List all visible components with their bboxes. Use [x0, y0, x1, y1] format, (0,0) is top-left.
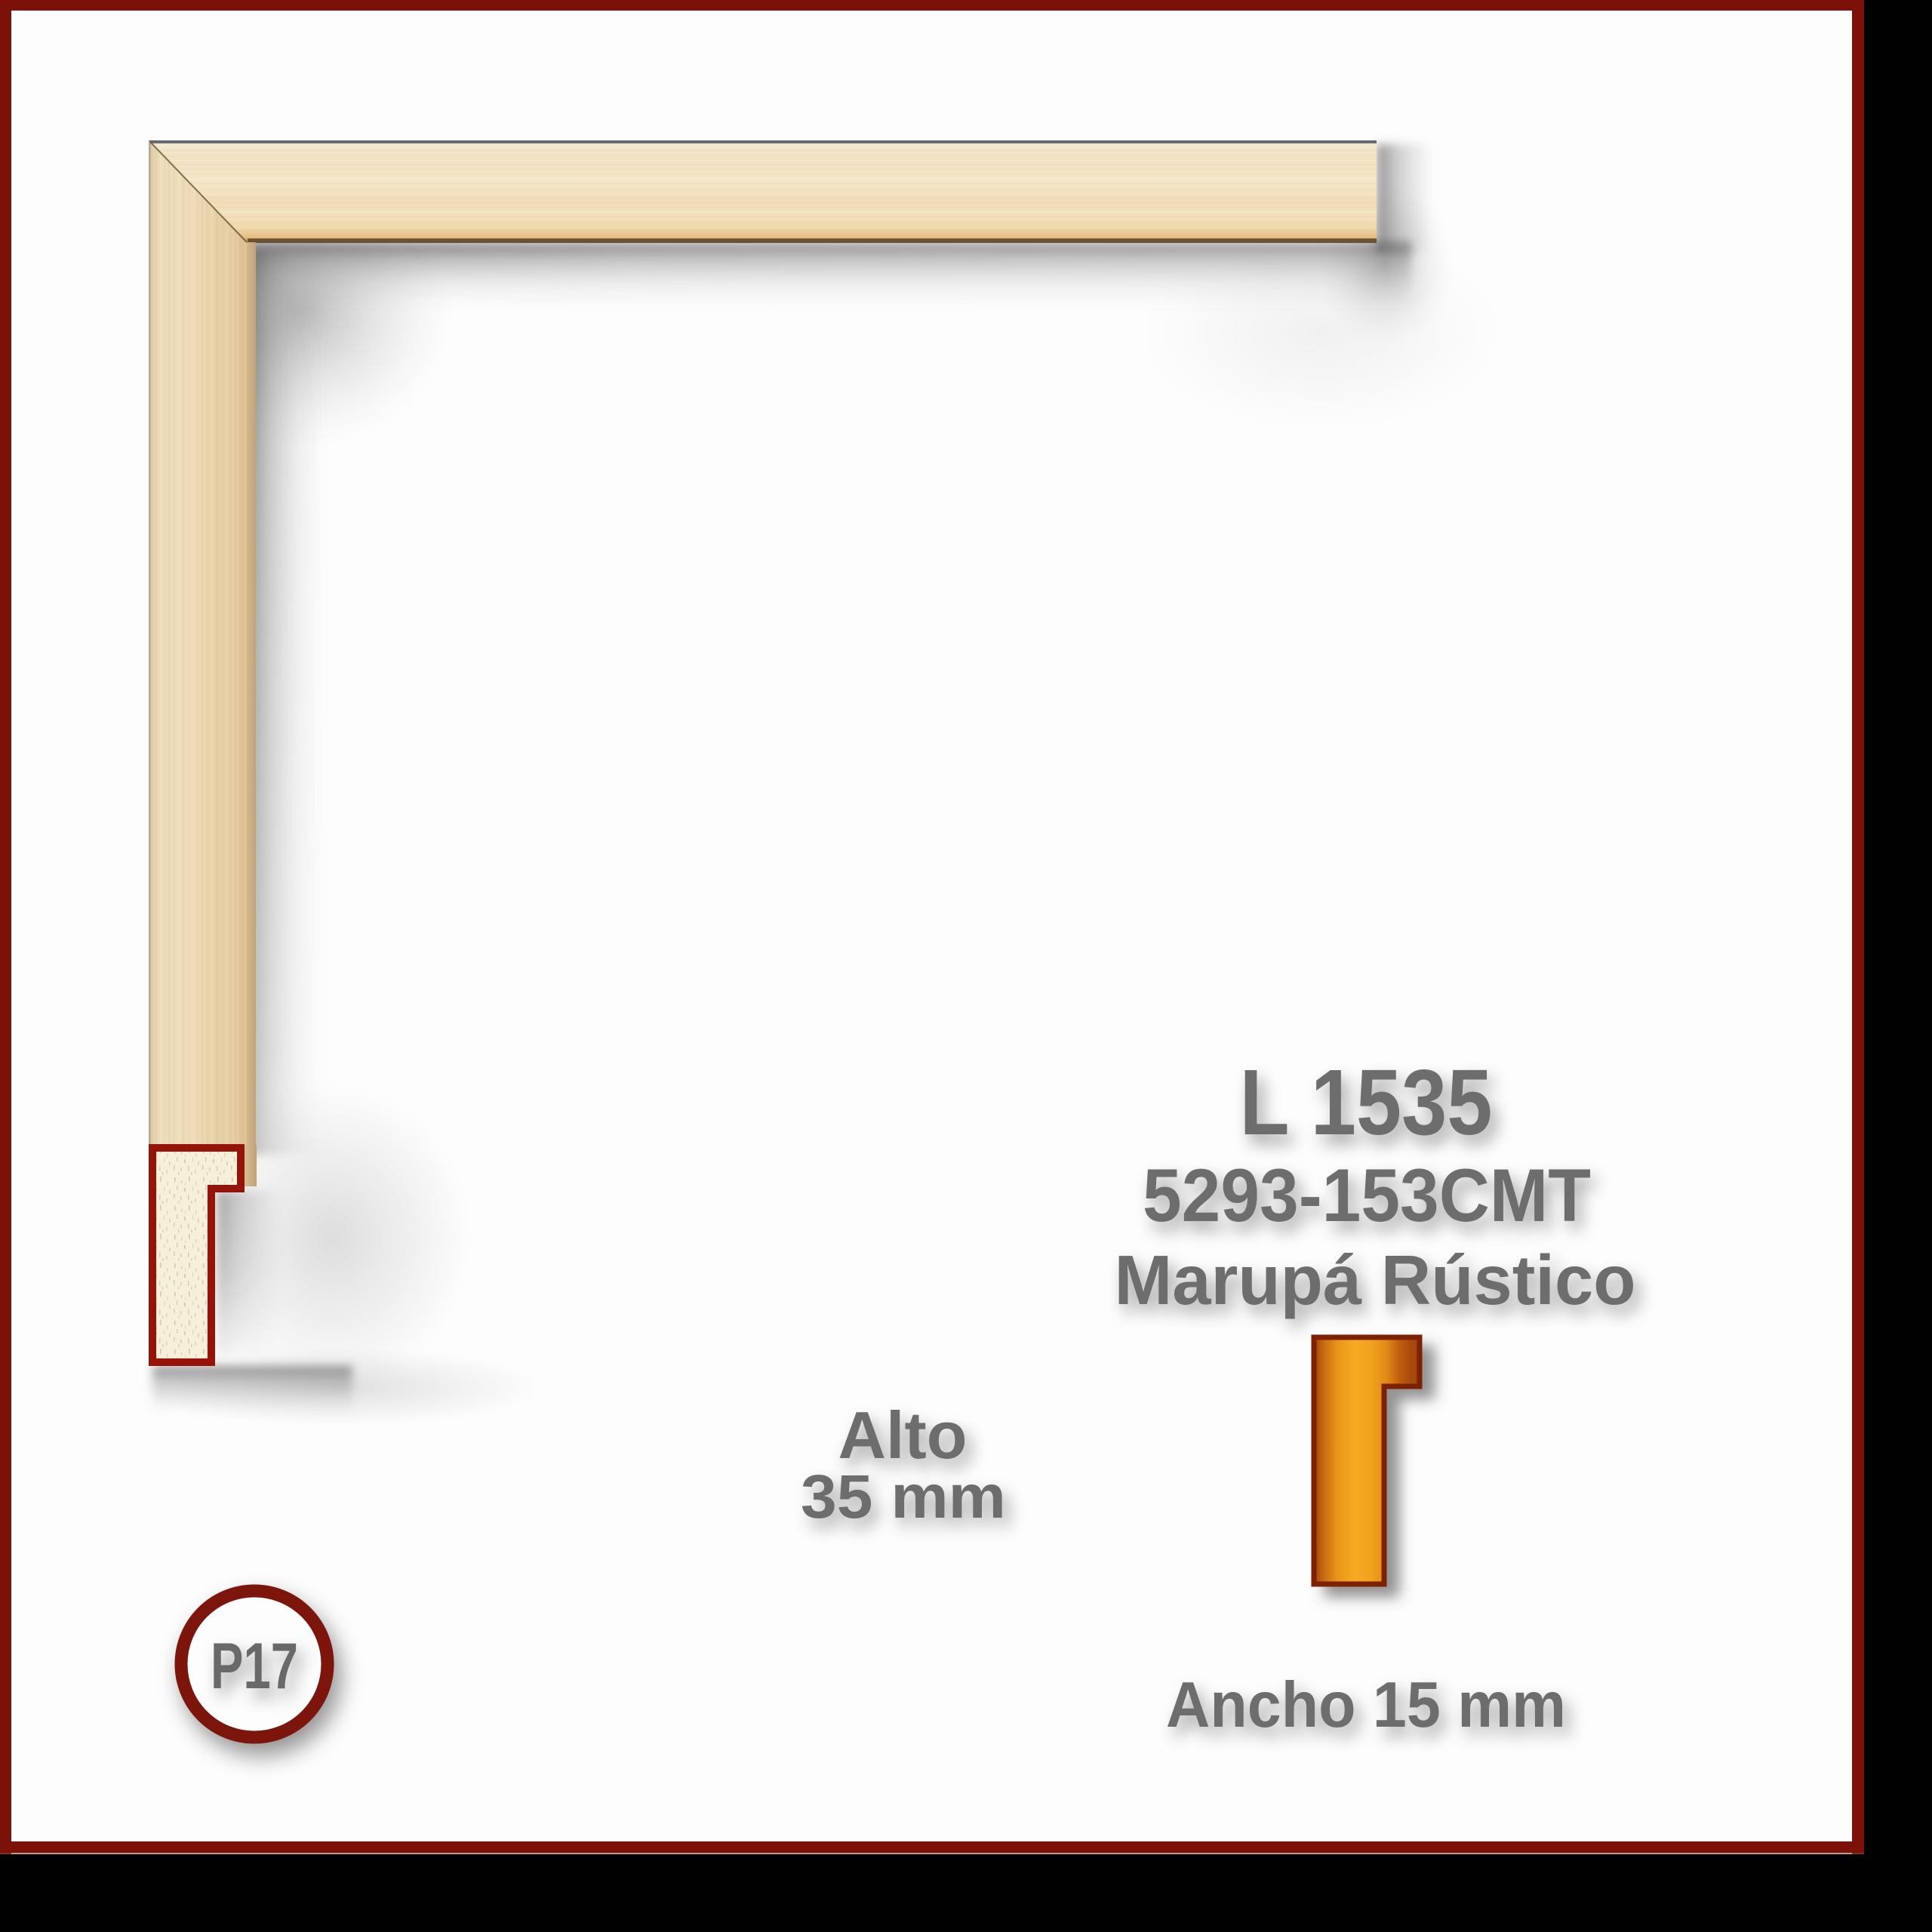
svg-text:35 mm: 35 mm [801, 1463, 1006, 1531]
svg-text:Ancho 15 mm: Ancho 15 mm [1166, 1669, 1566, 1741]
svg-text:P17: P17 [211, 1630, 298, 1703]
svg-text:L 1535: L 1535 [1240, 1051, 1493, 1155]
svg-text:5293-153CMT: 5293-153CMT [1143, 1153, 1591, 1237]
svg-text:Alto: Alto [838, 1398, 968, 1472]
svg-text:Marupá Rústico: Marupá Rústico [1115, 1241, 1636, 1319]
